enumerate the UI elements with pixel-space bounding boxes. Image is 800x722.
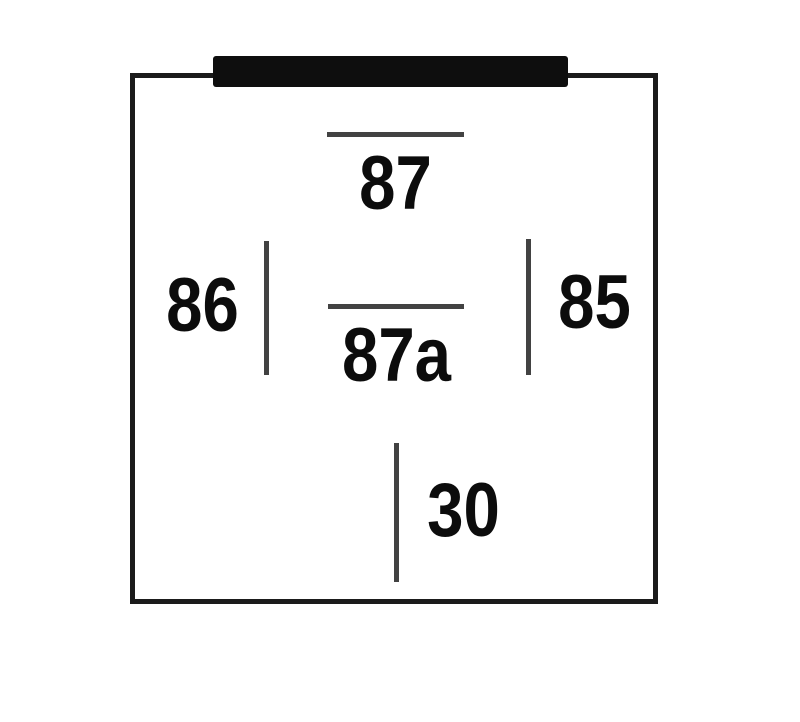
pin-87-terminal-line	[327, 132, 464, 137]
pin-86-terminal-line	[264, 241, 269, 375]
relay-pinout-diagram: 87 87a 86 85 30	[0, 0, 800, 722]
relay-mounting-tab	[213, 56, 568, 87]
pin-87-label: 87	[337, 146, 455, 222]
pin-85-label: 85	[549, 265, 639, 341]
pin-86-label: 86	[157, 268, 247, 344]
pin-85-terminal-line	[526, 239, 531, 375]
pin-87a-label: 87a	[338, 318, 456, 394]
pin-87a-terminal-line	[328, 304, 464, 309]
pin-30-terminal-line	[394, 443, 399, 582]
pin-30-label: 30	[418, 473, 508, 549]
